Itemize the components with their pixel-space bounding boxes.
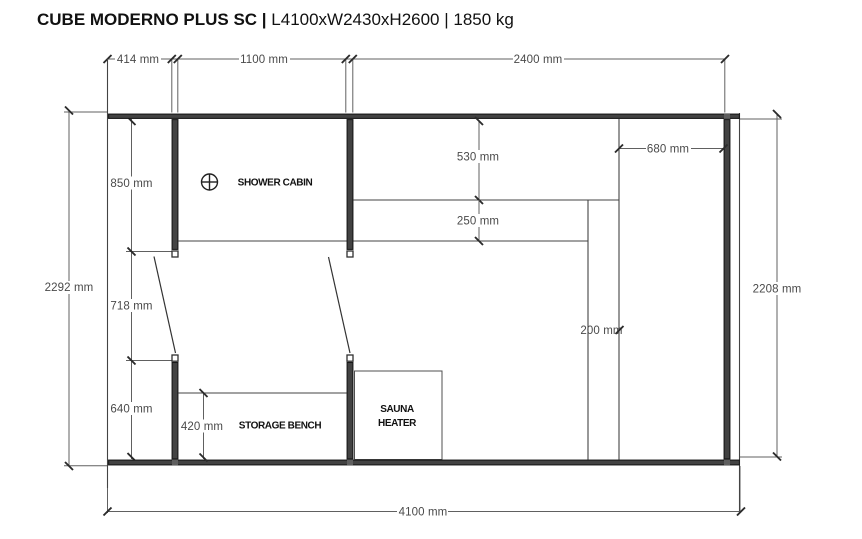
svg-text:HEATER: HEATER: [378, 418, 417, 429]
svg-text:2400 mm: 2400 mm: [514, 54, 563, 66]
svg-text:200 mm: 200 mm: [580, 325, 622, 337]
svg-text:STORAGE BENCH: STORAGE BENCH: [239, 421, 322, 432]
svg-text:CUBE MODERNO PLUS SC | L4100xW: CUBE MODERNO PLUS SC | L4100xW2430xH2600…: [37, 10, 514, 29]
svg-text:850 mm: 850 mm: [110, 178, 152, 190]
svg-text:2208 mm: 2208 mm: [753, 284, 802, 296]
svg-text:4100 mm: 4100 mm: [399, 507, 448, 519]
svg-text:718 mm: 718 mm: [110, 301, 152, 313]
svg-text:2292 mm: 2292 mm: [45, 282, 94, 294]
svg-text:SAUNA: SAUNA: [380, 404, 414, 415]
svg-text:1100 mm: 1100 mm: [240, 54, 288, 66]
svg-text:640 mm: 640 mm: [110, 404, 152, 416]
svg-text:414 mm: 414 mm: [117, 54, 159, 66]
svg-text:SHOWER CABIN: SHOWER CABIN: [238, 178, 313, 189]
svg-text:680 mm: 680 mm: [647, 144, 689, 156]
svg-text:420 mm: 420 mm: [181, 421, 223, 433]
svg-text:530 mm: 530 mm: [457, 152, 499, 164]
svg-text:250 mm: 250 mm: [457, 216, 499, 228]
